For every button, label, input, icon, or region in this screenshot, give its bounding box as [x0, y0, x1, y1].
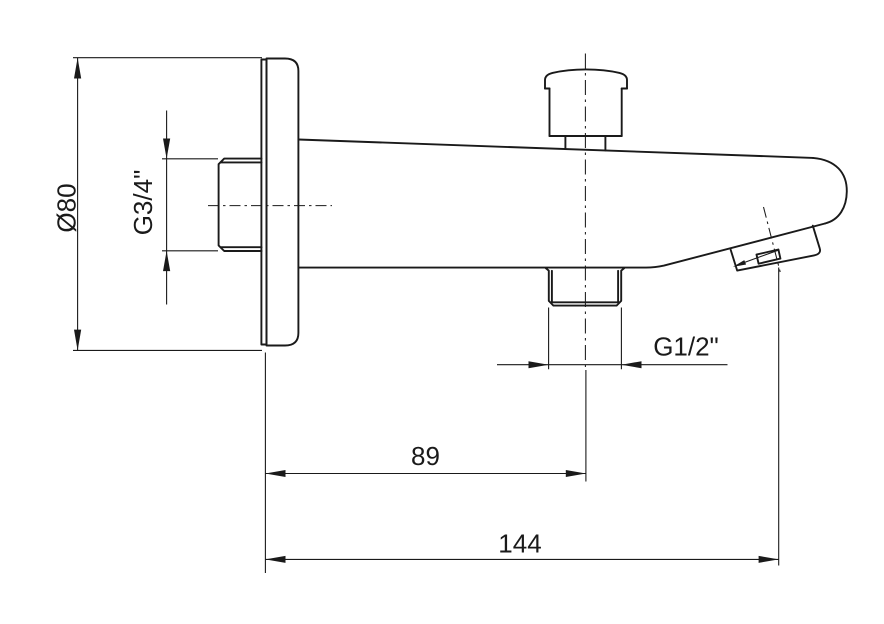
spout-outline-group — [219, 59, 847, 346]
spout-body — [298, 140, 846, 268]
centerlines-group — [208, 54, 780, 369]
dim-label-plate-to-outlet-axis: 89 — [411, 441, 440, 471]
dimension-outlet-thread: G1/2" — [497, 308, 728, 370]
dim-label-inlet-thread: G3/4" — [128, 170, 158, 236]
inlet-thread-connector — [219, 159, 262, 251]
technical-drawing-canvas: Ø80 G3/4" G1/2" 89 — [0, 0, 884, 624]
flow-direction-line — [741, 250, 779, 264]
dimension-inlet-thread: G3/4" — [128, 111, 218, 305]
bath-spout-dimension-drawing: Ø80 G3/4" G1/2" 89 — [0, 0, 884, 624]
aerator-collar — [731, 226, 820, 271]
dim-label-outlet-thread: G1/2" — [653, 332, 719, 362]
dim-label-overall-projection: 144 — [498, 529, 541, 559]
dim-label-plate-diameter: Ø80 — [52, 183, 82, 232]
dimension-overall-projection: 144 — [265, 268, 778, 566]
wall-plate — [261, 59, 298, 346]
diverter-knob — [545, 69, 627, 150]
